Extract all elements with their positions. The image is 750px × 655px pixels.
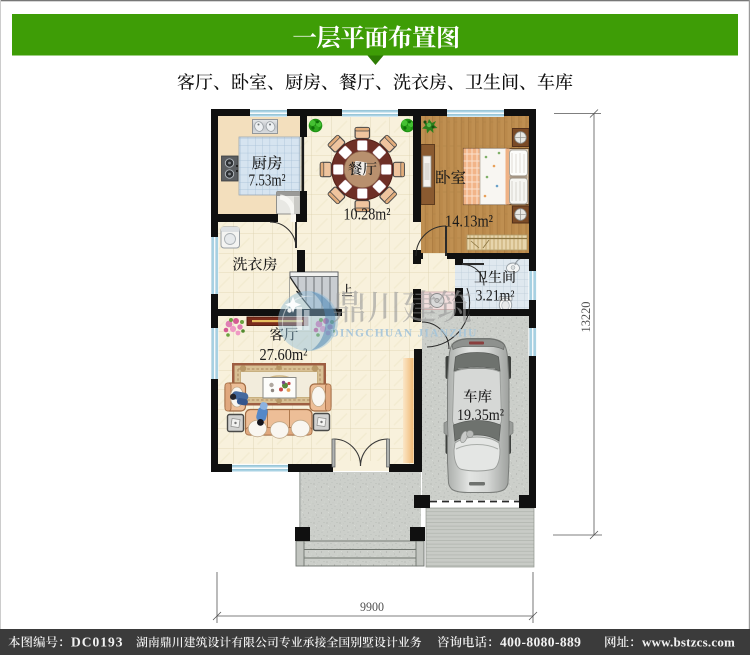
- svg-text:14.13m²: 14.13m²: [445, 212, 493, 231]
- svg-text:7.53m²: 7.53m²: [249, 171, 286, 190]
- svg-text:DINGCHUAN JIANZHU: DINGCHUAN JIANZHU: [330, 328, 477, 340]
- svg-text:400-8080-889: 400-8080-889: [500, 635, 581, 650]
- svg-text:3.21m²: 3.21m²: [476, 288, 515, 305]
- svg-text:10.28m²: 10.28m²: [344, 205, 391, 224]
- svg-text:9900: 9900: [360, 600, 384, 614]
- svg-text:DC0193: DC0193: [71, 635, 124, 650]
- svg-text:www.bstzcs.com: www.bstzcs.com: [642, 635, 735, 650]
- svg-text:19.35m²: 19.35m²: [457, 407, 504, 424]
- svg-text:13220: 13220: [579, 302, 593, 333]
